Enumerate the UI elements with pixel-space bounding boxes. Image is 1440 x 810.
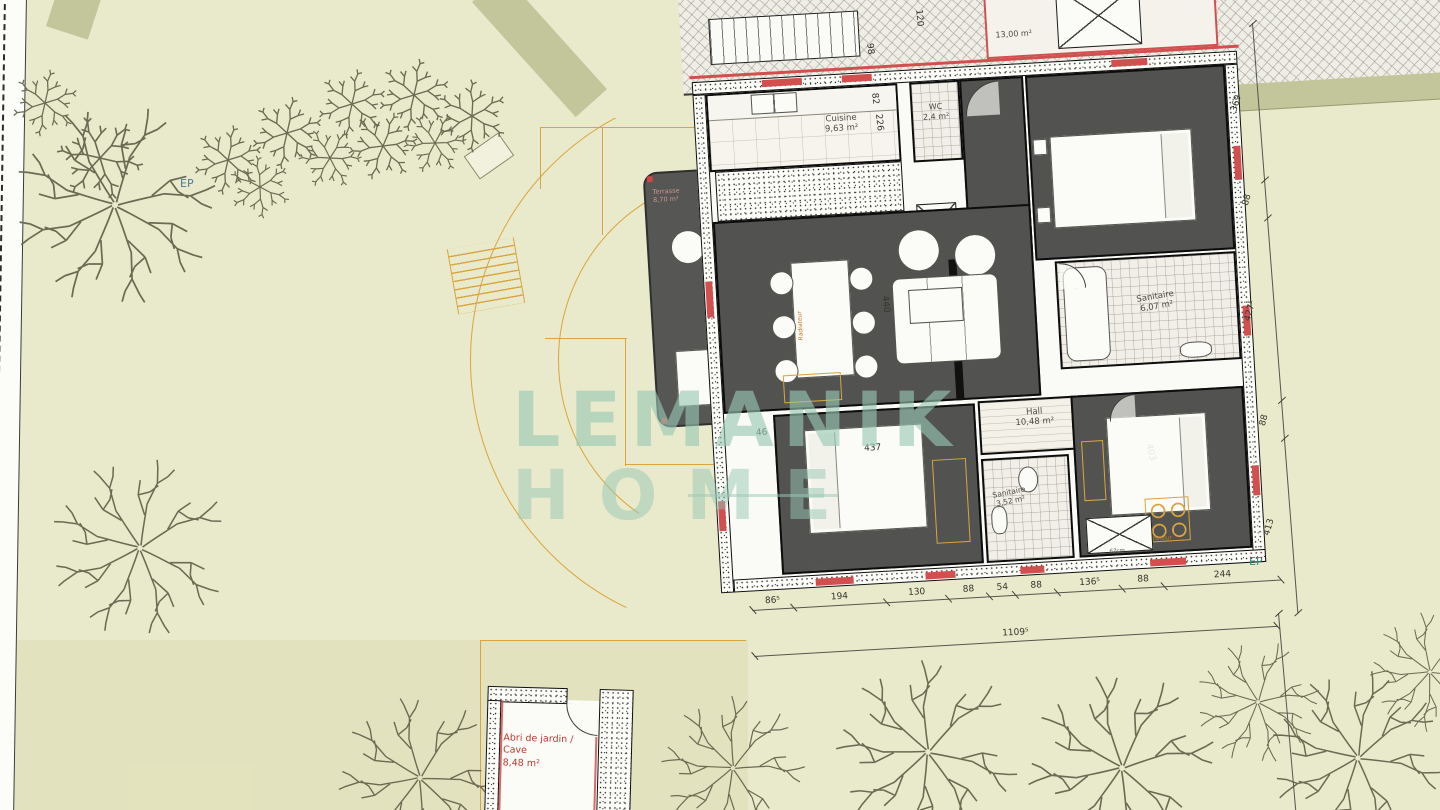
ep-label-bottom: EP [1249,555,1263,568]
room-sanitaire-1: Sanitaire6,07 m² [1055,251,1242,369]
site-plan-canvas: Terrasse8,70 m² 13,00 m² Cuisine9,63 m² … [0,0,1440,810]
signpost-box [464,132,514,179]
driveway-band [472,0,607,117]
bed [1049,128,1196,228]
roof-terrace-area-label: 13,00 m² [995,28,1032,40]
watermark-rule [688,494,838,497]
window-size-label: 82cm [812,566,828,573]
garden-stairs [447,238,525,315]
wardrobe [932,458,971,544]
house: 13,00 m² Cuisine9,63 m² 82 226 WC2,4 m² [692,51,1267,594]
dimension-total-right: 1385 [1266,613,1324,810]
shed-wall-right [596,689,634,810]
dim-top-walk: 120 [913,9,925,27]
nightstand [1033,139,1048,156]
dim-value: 88 [1030,580,1042,591]
bed-pillow [808,432,840,529]
dim-value: 86⁵ [765,595,781,606]
dim-value: 244 [1214,569,1232,580]
verge-wedge-top-left [46,0,102,40]
boundary-line [540,127,541,189]
dim-value: 54 [996,582,1008,593]
deck-corner-marker [647,176,653,182]
terrace-label: Terrasse8,70 m² [652,187,680,205]
dim-value: 130 [908,587,926,598]
wardrobe [1081,440,1106,501]
shrub-icon [14,58,522,230]
shed-label: Abri de jardin /Cave8,48 m² [502,732,573,771]
dim-value: 194 [831,591,849,602]
boundary-line [480,640,481,810]
dim-sofa: 440 [880,295,892,313]
coffee-table [908,287,964,324]
nightstand [1037,207,1052,224]
bed: 437 [804,423,928,534]
room-sanitaire-2: Sanitaire3,52 m² [981,454,1075,563]
window-size-label: 62cm [1109,548,1125,555]
dim-kitchen-a: 82 [869,92,880,104]
skylight [1055,0,1142,49]
ep-label-top: EP [180,177,194,190]
washbasin [1180,341,1213,359]
dim-value: 88 [1257,414,1270,428]
boundary-line [545,338,627,339]
dim-left-wall: 46 [756,428,768,439]
boundary-line [602,127,603,235]
boundary-line [625,338,626,466]
dim-kitchen-b: 226 [873,113,885,131]
window-mark [1020,566,1044,574]
bed-pillow [1179,416,1207,507]
dim-bed-left: 437 [864,443,882,454]
entry-steps [708,10,860,65]
sanitaire1-label: Sanitaire6,07 m² [1136,289,1177,315]
dim-value: 88 [963,584,975,595]
dim-top-window: 98 [864,43,875,55]
dim-value: 1109⁵ [1002,627,1029,639]
dim-value: 88 [1137,574,1149,585]
sanitaire2-label: Sanitaire3,52 m² [992,484,1028,508]
bed-pillow [1160,133,1192,218]
kitchen-sink [751,92,798,115]
deck-corner-marker [661,418,667,424]
wc-label: WC2,4 m² [915,101,956,122]
window-size-label: 82cm [920,560,936,567]
room-bedroom-sw: 437 [773,403,984,574]
washbasin [991,506,1009,535]
room-bedroom-ne [1025,64,1235,260]
boundary-line [480,640,746,641]
dim-value: 136⁵ [1079,577,1100,588]
garden-shed: Abri de jardin /Cave8,48 m² [484,686,641,810]
dim-value: 413 [1262,518,1276,537]
dimension-total-bottom: 1109⁵ [754,613,1278,657]
radiator-box [783,372,843,403]
